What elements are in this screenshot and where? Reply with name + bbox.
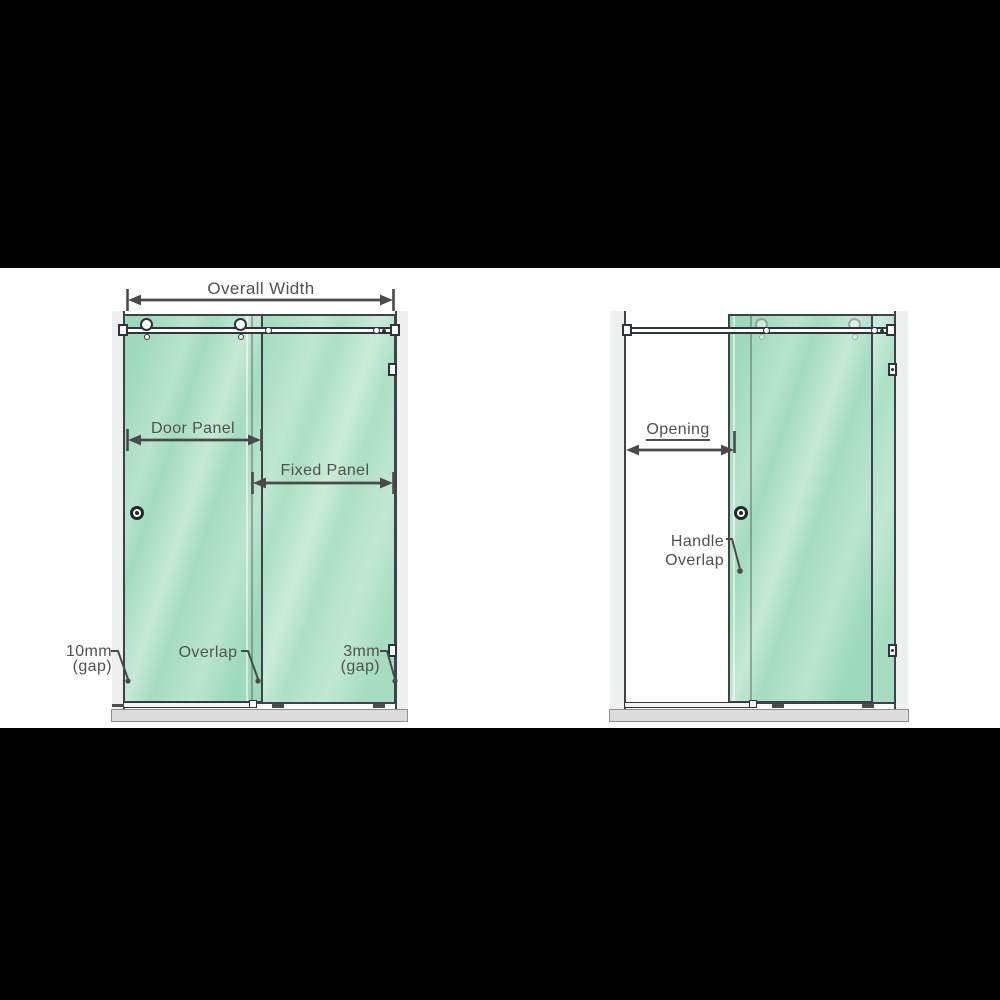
bottom-spacer-icon [772,704,784,708]
rail-end-cap-left [118,324,128,336]
panel-standoff-icon [373,327,380,334]
wall-bracket-icon [388,644,397,657]
gap-10mm-sublabel: (gap) [40,659,112,674]
bottom-guide-icon [749,700,757,708]
gap-3mm-label: 3mm [308,644,380,659]
gap-3mm-sublabel: (gap) [308,659,380,674]
handle-overlap-line2: Overlap [640,551,724,570]
standoff-pin-icon [382,329,386,333]
top-letterbox-bar [0,0,1000,268]
handle-overlap-label: Handle Overlap [640,532,724,570]
top-rail [120,327,398,334]
roller-icon [234,318,247,331]
roller-bolt-icon [144,334,150,340]
roller-icon [140,318,153,331]
bottom-spacer-icon [862,704,874,708]
bottom-spacer-icon [272,704,284,708]
bracket-screw-icon [891,649,894,652]
roller-bolt-icon [238,334,244,340]
door-handle-pin-icon [135,511,139,515]
panel-standoff-icon [265,327,272,334]
shower-tray [111,709,408,722]
bottom-guide-icon [249,700,257,708]
roller-bolt-icon [759,334,765,340]
door-edge-highlight [246,316,248,701]
bottom-letterbox-bar [0,728,1000,1000]
door-panel-label: Door Panel [122,420,264,437]
rail-end-cap-right [886,324,896,336]
opening-label: Opening [618,421,738,441]
top-rail [624,327,896,334]
wall-left-edge [624,311,626,709]
wall-bracket-icon [388,363,397,376]
wall-right [896,311,908,709]
product-dimension-diagram: Overall Width Door Panel Fixed Panel 10m… [0,0,1000,1000]
panel-standoff-icon [871,327,878,334]
fixed-edge-through-glass [750,316,752,701]
handle-overlap-line1: Handle [640,532,724,551]
door-bottom-seal [123,702,255,708]
rail-end-cap-left [622,324,632,336]
threshold-bar [624,702,754,708]
bracket-screw-icon [891,368,894,371]
rail-end-cap-right [390,324,400,336]
bottom-spacer-icon [373,704,385,708]
fixed-panel-label: Fixed Panel [254,462,396,479]
overlap-label: Overlap [170,644,246,661]
door-handle-pin-icon [739,511,743,515]
fixed-edge-through-glass [251,316,253,701]
shower-tray [609,709,909,722]
wall-right [396,311,408,709]
overall-width-label: Overall Width [141,280,381,297]
opening-label-text: Opening [646,421,709,441]
standoff-pin-icon [880,329,884,333]
gap-10mm-label: 10mm [40,644,112,659]
roller-bolt-icon [852,334,858,340]
panel-standoff-icon [763,327,770,334]
wall-left [610,311,624,709]
tray-edge [112,704,124,707]
